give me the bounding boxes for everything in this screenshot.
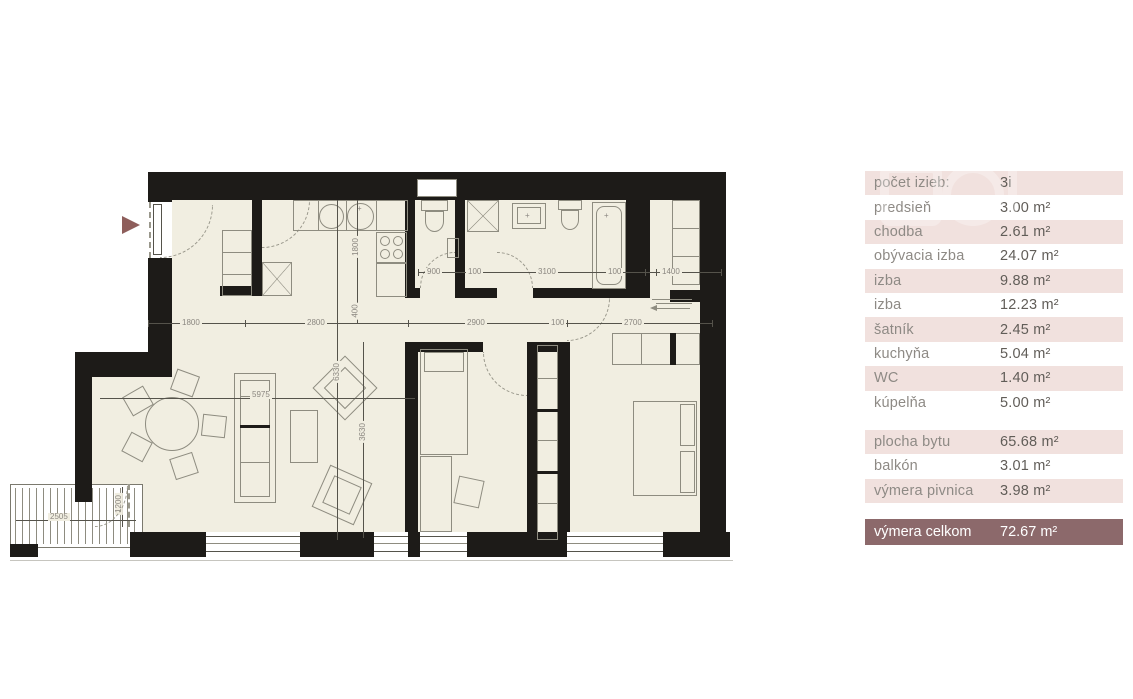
dim-wall-c: 100 — [606, 268, 623, 276]
dining-chair-5 — [201, 414, 227, 438]
wall-left-b — [148, 258, 172, 354]
window-bedroom1-glass — [420, 543, 467, 544]
threshold-line-2 — [656, 303, 692, 304]
table-row: chodba2.61 m² — [865, 220, 1123, 244]
dining-table — [145, 397, 199, 451]
row-value: 65.68 m² — [1000, 434, 1059, 450]
dim-closet-width: 1400 — [660, 268, 682, 276]
stove-burner-2 — [393, 236, 403, 246]
dim-kitchen-depth: 1800 — [352, 236, 360, 258]
row-label: šatník — [865, 322, 1000, 338]
wall-corridor-top-b — [455, 288, 497, 298]
sofa-divider-3 — [240, 462, 270, 463]
row-label: balkón — [865, 458, 1000, 474]
area-table-summary: plocha bytu65.68 m²balkón3.01 m²výmera p… — [865, 430, 1123, 503]
desk — [420, 456, 452, 532]
row-value: 2.61 m² — [1000, 224, 1051, 240]
balcony-door-leaf — [128, 484, 132, 527]
closet-shelf-2 — [672, 228, 700, 257]
hall-cabinet — [262, 262, 292, 296]
top-wall-vent — [417, 179, 457, 197]
wardrobe-shelf-3 — [537, 440, 558, 441]
floor-plan: 2505 1200 — [0, 0, 760, 699]
dresser-div-1 — [641, 333, 642, 365]
washing-machine — [467, 200, 499, 232]
balcony-corner-block — [10, 544, 38, 557]
dim-living-part-height: 3630 — [359, 421, 367, 443]
balcony-width-dim: 2505 — [48, 513, 70, 521]
table-gap-1 — [865, 415, 1123, 430]
window-living-1 — [206, 536, 300, 552]
bed-single-pillow — [424, 352, 464, 372]
row-value: 24.07 m² — [1000, 248, 1059, 264]
table-row: kuchyňa5.04 m² — [865, 342, 1123, 366]
total-value: 72.67 m² — [1000, 524, 1057, 540]
dim-bedroom1-width: 2900 — [465, 319, 487, 327]
area-table-rows: počet izieb:3ipredsieň3.00 m²chodba2.61 … — [865, 171, 1123, 415]
wall-corridor-top-a — [405, 288, 420, 298]
wall-wardrobe-left — [527, 342, 537, 532]
table-row: WC1.40 m² — [865, 366, 1123, 390]
row-label: výmera pivnica — [865, 483, 1000, 499]
window-living-2-glass — [374, 543, 408, 544]
wall-step-vertical — [75, 377, 92, 502]
table-row: izba9.88 m² — [865, 269, 1123, 293]
total-row: výmera celkom 72.67 m² — [865, 519, 1123, 545]
table-row: kúpelňa5.00 m² — [865, 391, 1123, 415]
bed-double-pillow-2 — [680, 451, 695, 493]
dim-bedroom2-width: 2700 — [622, 319, 644, 327]
bed-double-pillow-1 — [680, 404, 695, 446]
floorplan-page: 2505 1200 — [0, 0, 1133, 699]
hall-wardrobe — [222, 230, 252, 296]
table-gap-2 — [865, 503, 1123, 519]
window-living-2 — [374, 536, 408, 552]
wall-bottom-5 — [663, 532, 730, 557]
wall-bottom-1 — [130, 532, 206, 557]
wall-step-horizontal — [75, 352, 172, 377]
sofa-divider-2 — [240, 425, 270, 428]
table-row: predsieň3.00 m² — [865, 195, 1123, 219]
wardrobe-shelf-5 — [537, 503, 558, 504]
wardrobe-column — [537, 345, 558, 540]
kitchen-sink-bowl — [319, 204, 344, 229]
coffee-table — [290, 410, 318, 463]
row-label: plocha bytu — [865, 434, 1000, 450]
total-label: výmera celkom — [865, 524, 1000, 540]
wardrobe-shelf-1 — [537, 378, 558, 379]
closet-shelf-1 — [672, 200, 700, 229]
row-value: 5.00 m² — [1000, 395, 1051, 411]
row-value: 3.00 m² — [1000, 200, 1051, 216]
dresser-div-2 — [670, 333, 676, 365]
row-value: 9.88 m² — [1000, 273, 1051, 289]
table-row: výmera pivnica3.98 m² — [865, 479, 1123, 503]
wall-right — [700, 172, 726, 557]
dim-kitchen-width: 2800 — [305, 319, 327, 327]
wall-bedroom1-left — [405, 342, 418, 532]
row-label: kuchyňa — [865, 346, 1000, 362]
wc-toilet-tank — [421, 200, 448, 211]
bath-sink-tap-icon: + — [525, 212, 530, 220]
bathtub-tap-icon: + — [604, 212, 609, 220]
row-label: izba — [865, 297, 1000, 313]
row-value: 12.23 m² — [1000, 297, 1059, 313]
threshold-line-1 — [652, 299, 692, 300]
wardrobe-shelf-2 — [537, 409, 558, 412]
table-row: počet izieb:3i — [865, 171, 1123, 195]
row-label: chodba — [865, 224, 1000, 240]
hall-wardrobe-shelf-1 — [222, 252, 252, 253]
wardrobe-shelf-4 — [537, 471, 558, 474]
dim-living-width: 5975 — [250, 391, 272, 399]
table-row: plocha bytu65.68 m² — [865, 430, 1123, 454]
window-bedroom2 — [567, 536, 663, 552]
dim-wall-a: 100 — [549, 319, 566, 327]
row-label: obývacia izba — [865, 248, 1000, 264]
kitchen-cabinet-low — [376, 263, 407, 297]
table-row: šatník2.45 m² — [865, 317, 1123, 341]
table-row: obývacia izba24.07 m² — [865, 244, 1123, 268]
stove-burner-1 — [380, 236, 390, 246]
bath-toilet-tank — [558, 200, 582, 210]
dim-wc-width: 900 — [425, 268, 442, 276]
dim-bathroom-width: 3100 — [536, 268, 558, 276]
area-table: počet izieb:3ipredsieň3.00 m²chodba2.61 … — [865, 171, 1123, 545]
row-label: WC — [865, 370, 1000, 386]
balcony-dim-line — [16, 520, 136, 521]
bath-toilet-bowl — [561, 210, 579, 230]
row-label: predsieň — [865, 200, 1000, 216]
terrace-edge-line — [10, 560, 733, 561]
dim-nook: 400 — [352, 302, 360, 319]
wall-corridor-top-c — [533, 288, 632, 298]
entrance-marker-icon — [122, 216, 140, 234]
table-row: izba12.23 m² — [865, 293, 1123, 317]
window-bedroom1 — [420, 536, 467, 552]
window-bedroom2-glass — [567, 543, 663, 544]
row-label: počet izieb: — [865, 175, 1000, 191]
row-value: 3i — [1000, 175, 1012, 191]
row-value: 3.01 m² — [1000, 458, 1051, 474]
kitchen-counter-div3 — [376, 200, 377, 231]
hall-wardrobe-shelf-2 — [222, 274, 252, 275]
wall-bath-right — [626, 200, 650, 298]
row-value: 5.04 m² — [1000, 346, 1051, 362]
wall-hall-L-vertical — [252, 200, 262, 296]
wall-bottom-3 — [408, 532, 420, 557]
row-value: 3.98 m² — [1000, 483, 1051, 499]
dim-living-height: 6330 — [333, 361, 341, 383]
wc-cistern — [447, 238, 459, 258]
row-label: izba — [865, 273, 1000, 289]
wall-left-a — [148, 172, 172, 202]
threshold-arrow-head-icon — [650, 305, 657, 311]
row-label: kúpelňa — [865, 395, 1000, 411]
wall-wardrobe-right — [558, 342, 570, 532]
wall-closet-stub — [670, 290, 700, 302]
stove-burner-3 — [380, 249, 390, 259]
dim-hall-width: 1800 — [180, 319, 202, 327]
stove-burner-4 — [393, 249, 403, 259]
window-living-1-glass — [206, 543, 300, 544]
dim-wall-b: 100 — [466, 268, 483, 276]
table-row: balkón3.01 m² — [865, 454, 1123, 478]
dresser — [612, 333, 700, 365]
wc-toilet-bowl — [425, 211, 444, 232]
row-value: 2.45 m² — [1000, 322, 1051, 338]
row-value: 1.40 m² — [1000, 370, 1051, 386]
threshold-arrow-line — [656, 308, 690, 309]
